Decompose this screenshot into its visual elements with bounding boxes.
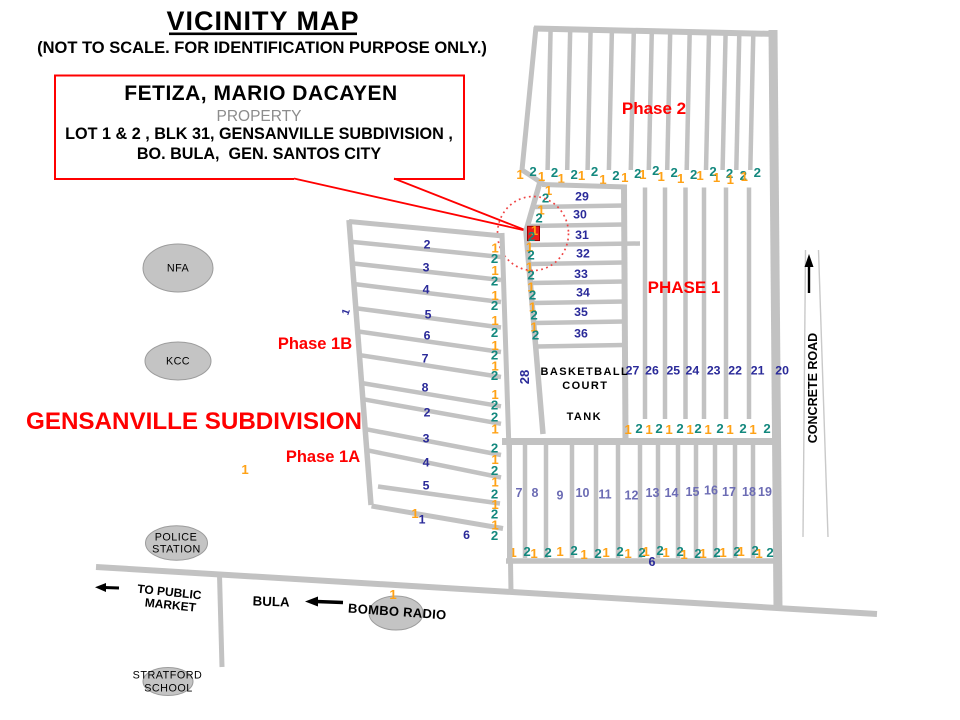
svg-text:Phase 1B: Phase 1B [278, 335, 352, 353]
svg-text:1: 1 [662, 545, 669, 560]
svg-text:30: 30 [573, 208, 587, 222]
svg-text:2: 2 [616, 544, 623, 559]
svg-text:1: 1 [749, 422, 756, 437]
svg-text:FETIZA, MARIO DACAYEN: FETIZA, MARIO DACAYEN [124, 82, 397, 105]
svg-text:8: 8 [532, 486, 539, 500]
svg-text:2: 2 [694, 421, 701, 436]
svg-text:KCC: KCC [166, 356, 190, 368]
svg-text:2: 2 [491, 298, 498, 313]
svg-text:14: 14 [665, 486, 679, 500]
svg-text:1: 1 [556, 544, 563, 559]
svg-text:2: 2 [528, 229, 535, 244]
svg-text:BO. BULA, GEN. SANTOS CITY: BO. BULA, GEN. SANTOS CITY [137, 145, 382, 163]
svg-text:1: 1 [704, 422, 711, 437]
svg-text:15: 15 [686, 485, 700, 499]
svg-text:13: 13 [646, 486, 660, 500]
svg-text:1: 1 [699, 546, 706, 561]
svg-text:BASKETBALL: BASKETBALL [541, 366, 630, 378]
svg-text:25: 25 [666, 364, 680, 378]
svg-text:18: 18 [742, 485, 756, 499]
svg-text:1: 1 [624, 546, 631, 561]
svg-text:2: 2 [754, 165, 761, 180]
svg-text:POLICE: POLICE [155, 532, 198, 544]
svg-text:2: 2 [491, 368, 498, 383]
svg-text:11: 11 [598, 488, 611, 502]
svg-text:19: 19 [758, 485, 772, 499]
svg-text:1: 1 [658, 169, 665, 184]
svg-text:Phase 2: Phase 2 [622, 99, 686, 118]
svg-text:GENSANVILLE SUBDIVISION: GENSANVILLE SUBDIVISION [26, 408, 362, 435]
svg-text:1: 1 [624, 422, 631, 437]
svg-text:1: 1 [241, 462, 248, 477]
svg-text:PHASE 1: PHASE 1 [648, 278, 721, 297]
svg-text:32: 32 [576, 247, 590, 261]
svg-text:21: 21 [751, 364, 765, 378]
svg-text:1: 1 [727, 172, 734, 187]
svg-text:1: 1 [491, 422, 498, 437]
svg-text:6: 6 [463, 528, 470, 542]
svg-text:TANK: TANK [567, 411, 602, 423]
svg-text:2: 2 [676, 421, 683, 436]
svg-text:COURT: COURT [562, 380, 608, 392]
svg-text:17: 17 [722, 485, 736, 499]
svg-text:2: 2 [532, 328, 539, 343]
svg-text:1: 1 [580, 547, 587, 562]
svg-text:1: 1 [686, 422, 693, 437]
svg-text:33: 33 [574, 267, 588, 281]
svg-text:1: 1 [389, 587, 396, 602]
svg-text:SCHOOL: SCHOOL [144, 683, 193, 695]
svg-text:2: 2 [739, 421, 746, 436]
svg-text:4: 4 [423, 283, 430, 297]
svg-text:1: 1 [621, 170, 628, 185]
svg-text:2: 2 [716, 421, 723, 436]
svg-text:BULA: BULA [252, 593, 290, 609]
svg-text:2: 2 [655, 421, 662, 436]
svg-text:10: 10 [576, 486, 590, 500]
svg-text:2: 2 [612, 168, 619, 183]
svg-text:1: 1 [578, 168, 585, 183]
svg-text:2: 2 [571, 167, 578, 182]
svg-text:STRATFORD: STRATFORD [133, 670, 203, 682]
svg-text:34: 34 [576, 286, 590, 300]
svg-text:23: 23 [707, 364, 721, 378]
svg-text:5: 5 [423, 479, 430, 493]
svg-text:1: 1 [696, 168, 703, 183]
svg-text:1: 1 [665, 422, 672, 437]
svg-text:2: 2 [591, 164, 598, 179]
svg-text:2: 2 [763, 421, 770, 436]
svg-text:8: 8 [422, 381, 429, 395]
svg-text:1: 1 [419, 513, 426, 527]
svg-text:CONCRETE ROAD: CONCRETE ROAD [806, 333, 820, 443]
svg-text:1: 1 [530, 546, 537, 561]
svg-text:2: 2 [635, 421, 642, 436]
svg-text:1: 1 [639, 167, 646, 182]
svg-text:1: 1 [680, 547, 687, 562]
svg-text:20: 20 [775, 364, 789, 378]
svg-text:1: 1 [726, 422, 733, 437]
svg-text:LOT 1 & 2 , BLK 31, GENSANVILL: LOT 1 & 2 , BLK 31, GENSANVILLE SUBDIVIS… [65, 125, 453, 143]
svg-text:22: 22 [728, 364, 742, 378]
svg-text:VICINITY MAP: VICINITY MAP [166, 6, 359, 36]
svg-text:1: 1 [645, 422, 652, 437]
svg-text:1: 1 [755, 546, 762, 561]
svg-text:2: 2 [594, 546, 601, 561]
svg-text:28: 28 [517, 370, 532, 384]
svg-text:7: 7 [516, 486, 523, 500]
svg-text:1: 1 [719, 545, 726, 560]
svg-text:2: 2 [529, 164, 536, 179]
svg-text:9: 9 [557, 489, 564, 503]
svg-text:2: 2 [544, 545, 551, 560]
svg-text:5: 5 [425, 308, 432, 322]
svg-text:7: 7 [422, 352, 429, 366]
svg-text:4: 4 [423, 456, 430, 470]
svg-text:31: 31 [575, 228, 589, 242]
svg-text:2: 2 [424, 238, 431, 252]
svg-text:29: 29 [575, 190, 589, 204]
svg-text:Phase 1A: Phase 1A [286, 448, 360, 466]
svg-text:26: 26 [645, 364, 659, 378]
svg-text:12: 12 [625, 489, 639, 503]
svg-text:6: 6 [424, 329, 431, 343]
svg-text:PROPERTY: PROPERTY [217, 108, 302, 125]
svg-text:36: 36 [574, 327, 588, 341]
svg-text:16: 16 [704, 484, 718, 498]
svg-text:(NOT TO SCALE. FOR IDENTIFICAT: (NOT TO SCALE. FOR IDENTIFICATION PURPOS… [37, 39, 487, 57]
svg-text:NFA: NFA [167, 263, 190, 275]
svg-text:1: 1 [516, 167, 523, 182]
svg-text:24: 24 [686, 364, 700, 378]
svg-text:2: 2 [424, 406, 431, 420]
svg-text:1: 1 [737, 544, 744, 559]
svg-text:6: 6 [649, 555, 656, 569]
svg-text:35: 35 [574, 305, 588, 319]
svg-text:2: 2 [491, 274, 498, 289]
svg-text:3: 3 [423, 261, 430, 275]
svg-text:1: 1 [713, 170, 720, 185]
svg-text:1: 1 [602, 545, 609, 560]
svg-text:1: 1 [411, 506, 418, 521]
svg-text:STATION: STATION [152, 544, 201, 556]
svg-text:1: 1 [677, 171, 684, 186]
svg-text:2: 2 [570, 543, 577, 558]
svg-text:2: 2 [491, 528, 498, 543]
svg-text:2: 2 [766, 545, 773, 560]
svg-text:3: 3 [423, 432, 430, 446]
svg-text:1: 1 [741, 169, 748, 184]
